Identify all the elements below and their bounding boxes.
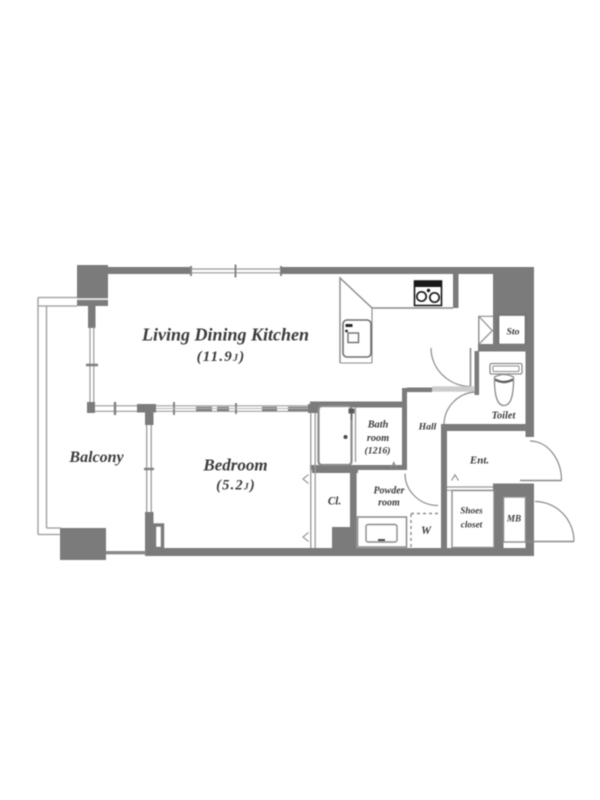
svg-text:(1216): (1216) xyxy=(364,446,390,457)
svg-text:Shoes: Shoes xyxy=(460,506,483,516)
svg-text:Toilet: Toilet xyxy=(492,411,517,422)
svg-text:Bedroom: Bedroom xyxy=(202,456,267,475)
svg-text:closet: closet xyxy=(461,520,483,530)
svg-text:Sto: Sto xyxy=(506,327,519,338)
svg-text:W: W xyxy=(421,525,432,537)
svg-text:Hall: Hall xyxy=(418,422,437,433)
svg-text:room: room xyxy=(367,433,389,444)
svg-text:Living Dining Kitchen: Living Dining Kitchen xyxy=(141,325,309,345)
svg-text:Balcony: Balcony xyxy=(68,449,124,466)
svg-text:(5.2J): (5.2J) xyxy=(216,478,256,494)
svg-text:Ent.: Ent. xyxy=(469,455,489,467)
svg-text:MB: MB xyxy=(506,514,521,524)
svg-text:Cl.: Cl. xyxy=(328,496,341,508)
svg-text:Powder: Powder xyxy=(373,486,404,497)
svg-text:Bath: Bath xyxy=(367,420,389,431)
svg-text:room: room xyxy=(378,498,400,509)
